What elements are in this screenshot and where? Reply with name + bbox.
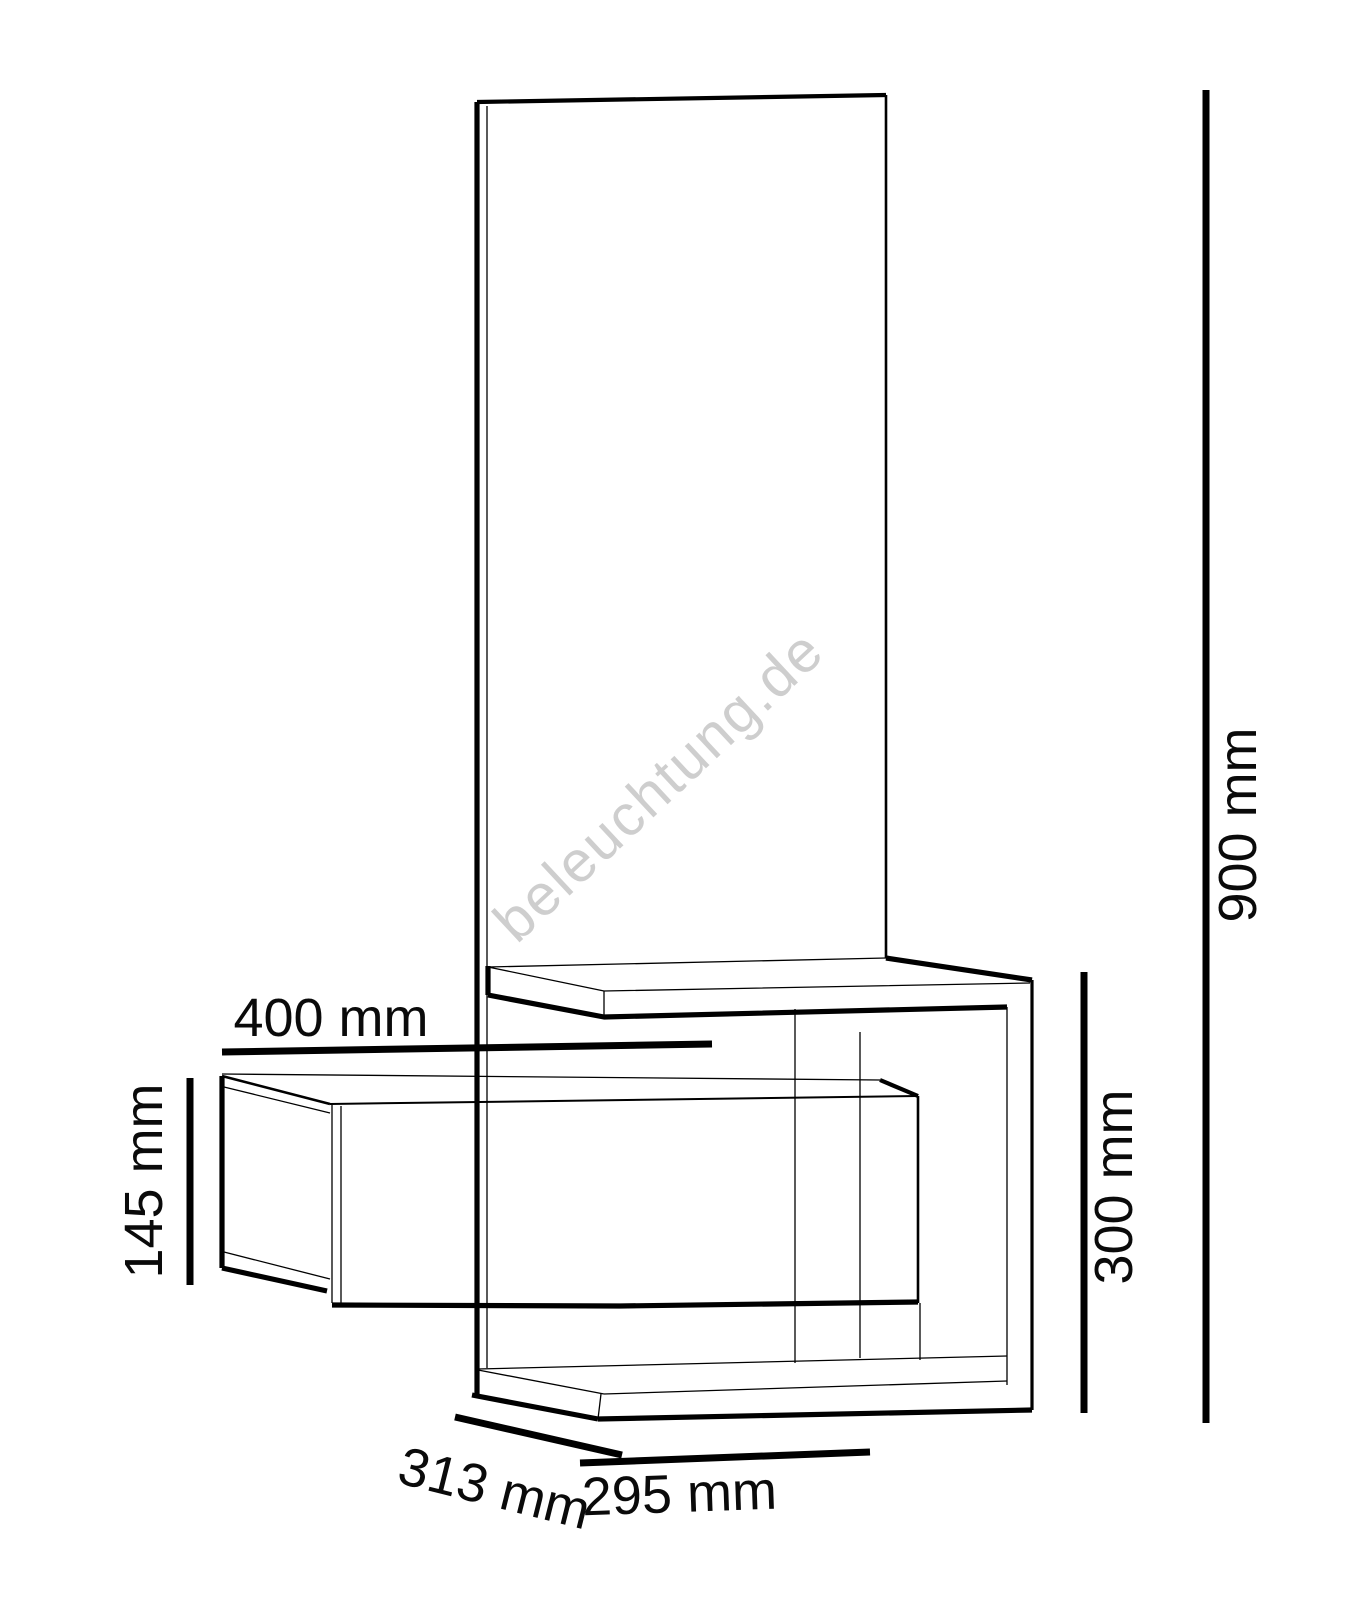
dim-label-drawer-height: 145 mm	[114, 1083, 174, 1278]
dim-label-frame-width: 295 mm	[581, 1461, 778, 1528]
dim-label-drawer-width: 400 mm	[233, 988, 428, 1048]
dim-label-frame-height: 300 mm	[1084, 1089, 1144, 1284]
side-frame	[795, 980, 1032, 1410]
drawer	[222, 1074, 918, 1306]
dim-line-frame-width	[580, 1452, 870, 1463]
watermark: beleuchtung.de	[481, 617, 836, 954]
dim-line-depth	[455, 1417, 622, 1455]
dimension-diagram: beleuchtung.de	[0, 0, 1358, 1600]
mid-shelf	[488, 958, 1032, 1017]
bottom-shelf	[472, 1356, 1032, 1419]
dim-label-depth: 313 mm	[392, 1436, 596, 1541]
dim-label-total-height: 900 mm	[1208, 727, 1268, 922]
furniture-line-drawing: beleuchtung.de	[0, 0, 1358, 1600]
